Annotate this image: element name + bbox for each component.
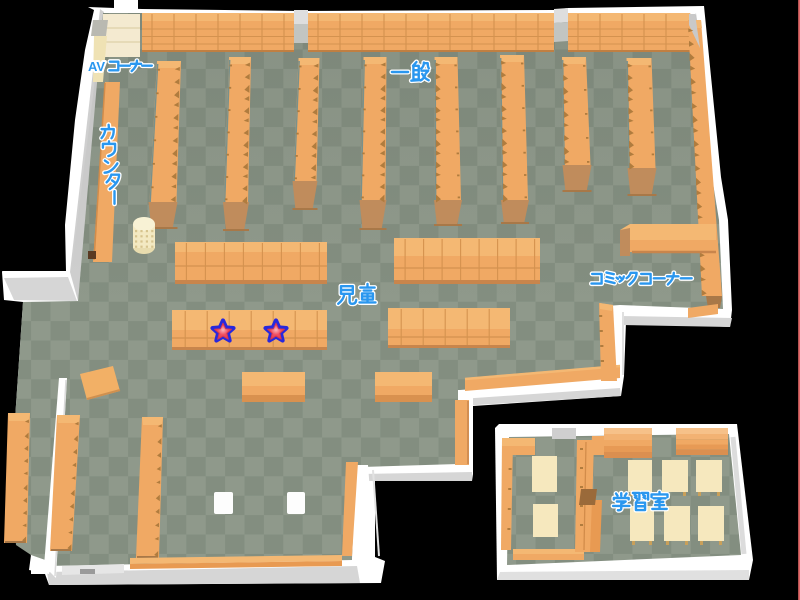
svg-text:AV: AV: [88, 59, 105, 74]
